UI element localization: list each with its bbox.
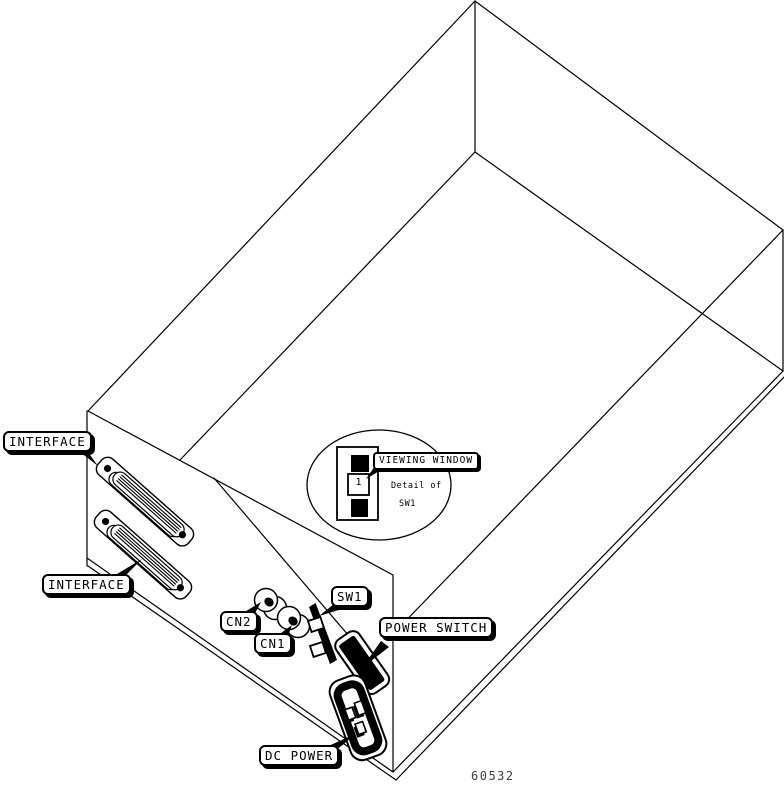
label-cn2: CN2 xyxy=(220,611,258,632)
label-cn1: CN1 xyxy=(254,633,292,654)
detail-caption-line2: SW1 xyxy=(399,499,416,510)
switch-cap-icon xyxy=(351,499,368,517)
switch-cap-icon xyxy=(351,455,369,472)
device-line-art xyxy=(0,0,784,793)
viewing-window-value: 1 xyxy=(348,477,369,488)
sw1-dip-switch xyxy=(308,603,337,664)
label-power-switch: POWER SWITCH xyxy=(379,617,493,638)
figure-60532-rear-panel-diagram: INTERFACE INTERFACE CN2 CN1 SW1 POWER SW… xyxy=(0,0,784,793)
detail-caption-line1: Detail of xyxy=(391,481,442,492)
enclosure-outline xyxy=(87,1,784,780)
label-interface-top: INTERFACE xyxy=(3,431,92,452)
label-viewing-window: VIEWING WINDOW xyxy=(373,452,479,470)
label-dc-power: DC POWER xyxy=(259,745,339,766)
label-interface-bottom: INTERFACE xyxy=(42,574,131,595)
label-sw1: SW1 xyxy=(331,586,369,607)
figure-number: 60532 xyxy=(471,769,515,783)
